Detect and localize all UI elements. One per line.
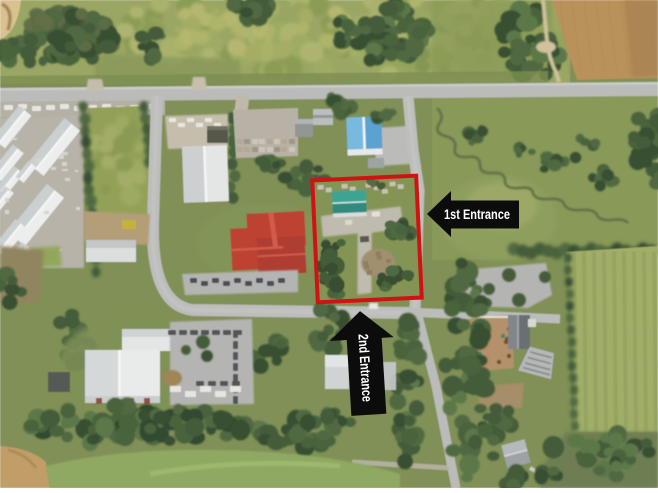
svg-text:1st Entrance: 1st Entrance (444, 206, 510, 222)
